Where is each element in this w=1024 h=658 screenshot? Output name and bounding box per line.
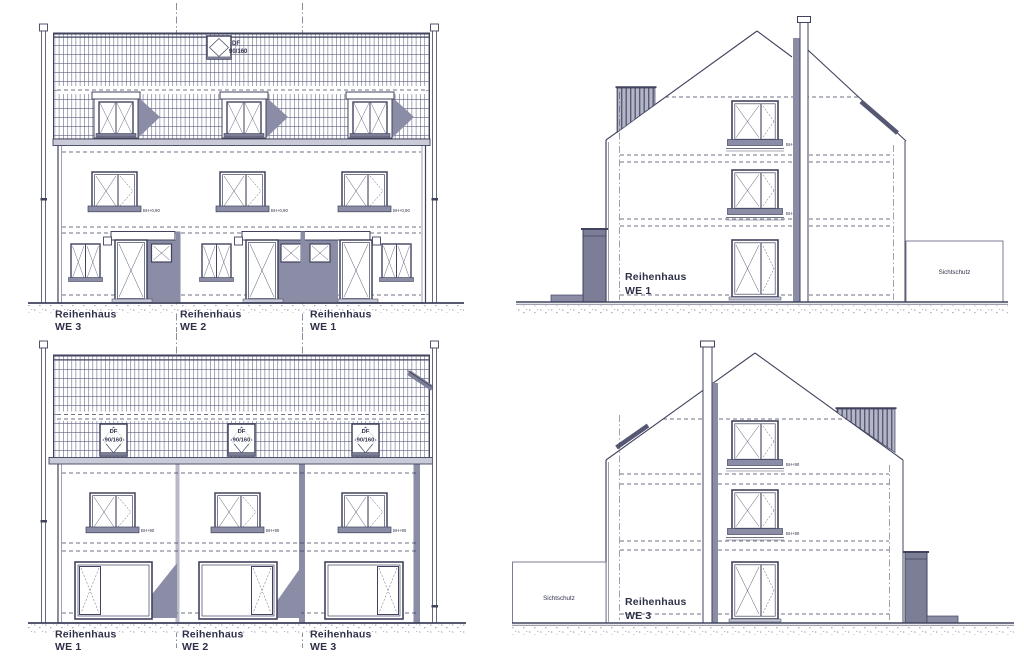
sill-height-label: BH+0,90	[143, 208, 160, 213]
side-elevation-we1-panel: BH+90 BH+90 Sichtschutz Reihenhaus WE 1	[516, 17, 1008, 314]
entrance-lamp	[104, 237, 112, 245]
unit-label: Reihenhaus	[625, 596, 687, 608]
chimney-we1	[793, 17, 811, 303]
roof-window-abbr: DF	[362, 429, 370, 435]
sill-height-label: BH+90	[141, 528, 155, 533]
roof-window-size: 90/160	[105, 438, 123, 444]
privacy-screen-we3: Sichtschutz	[513, 562, 607, 623]
ground-we3	[512, 623, 1014, 635]
roof-window-size: 90/160	[229, 49, 248, 55]
unit-number: WE 3	[310, 641, 336, 653]
front-elevation-panel: DF 90/160 BH+0,90 BH+0,90	[28, 3, 464, 333]
facade-front	[53, 139, 430, 303]
entrance-lamp	[235, 237, 243, 245]
dormers	[92, 92, 414, 138]
entrance-step	[243, 299, 283, 303]
unit-number: WE 1	[625, 285, 651, 297]
sill-height-label: BH+0,90	[393, 208, 410, 213]
roof-window-abbr: DF	[110, 429, 118, 435]
bin-shelter-we1	[551, 229, 608, 302]
chimney-we3	[701, 341, 719, 623]
elevation-drawings: DF 90/160 BH+0,90 BH+0,90	[0, 0, 1024, 658]
unit-number: WE 3	[55, 321, 81, 333]
upper-floor-windows-front: BH+0,90 BH+0,90 BH+0,90	[88, 172, 410, 213]
unit-label: Reihenhaus	[625, 271, 687, 283]
architectural-drawing-sheet: DF 90/160 BH+0,90 BH+0,90	[0, 0, 1024, 658]
corner-shadow	[414, 460, 420, 623]
party-wall-shadow	[301, 232, 306, 304]
unit-number: WE 2	[180, 321, 206, 333]
rear-elevation-panel: DF 90/160 DF 90/160 DF 90/160	[28, 333, 466, 653]
unit-label: Reihenhaus	[310, 309, 372, 321]
privacy-screen-we1: Sichtschutz	[906, 241, 1003, 302]
unit-number: WE 1	[310, 321, 336, 333]
entrance-step	[112, 299, 152, 303]
bin-shelter-we3	[903, 552, 958, 623]
side-elevation-we3-panel: BH+90 BH+90 Sichtschutz Reihenhaus WE 3	[512, 341, 1014, 635]
patio-doors-rear	[75, 562, 403, 619]
unit-number: WE 1	[55, 641, 81, 653]
privacy-screen-label: Sichtschutz	[939, 269, 971, 276]
eaves-gutter	[49, 458, 433, 465]
unit-labels-rear: Reihenhaus WE 1 Reihenhaus WE 2 Reihenha…	[55, 629, 372, 654]
door-canopy	[111, 232, 175, 241]
attic-level-band	[57, 412, 426, 422]
roof-window-size: 90/160	[233, 438, 251, 444]
roof-window-abbr: DF	[232, 41, 240, 47]
unit-labels-front: Reihenhaus WE 3 Reihenhaus WE 2 Reihenha…	[55, 309, 372, 334]
sill-height-label: BH+90	[393, 528, 407, 533]
unit-label: Reihenhaus	[180, 309, 242, 321]
unit-number: WE 3	[625, 610, 651, 622]
ground-we1	[516, 302, 1008, 314]
party-wall-shadow	[176, 232, 181, 304]
unit-label: Reihenhaus	[310, 629, 372, 641]
sill-height-label: BH+90	[786, 531, 800, 536]
unit-label: Reihenhaus	[182, 629, 244, 641]
roof-window-size: 90/160	[357, 438, 375, 444]
entrance-step	[338, 299, 378, 303]
sill-height-label: BH+0,90	[271, 208, 288, 213]
sill-height-label: BH+90	[266, 528, 280, 533]
unit-number: WE 2	[182, 641, 208, 653]
entrance-lamp	[373, 237, 381, 245]
door-canopy	[242, 232, 303, 241]
unit-label: Reihenhaus	[55, 629, 117, 641]
unit-label: Reihenhaus	[55, 309, 117, 321]
upper-floor-windows-rear: BH+90 BH+90 BH+90	[86, 493, 407, 533]
privacy-screen-label: Sichtschutz	[543, 595, 575, 602]
sill-height-label: BH+90	[786, 462, 800, 467]
roof-window-abbr: DF	[238, 429, 246, 435]
door-canopy	[304, 232, 370, 241]
eaves-gutter	[53, 139, 430, 146]
